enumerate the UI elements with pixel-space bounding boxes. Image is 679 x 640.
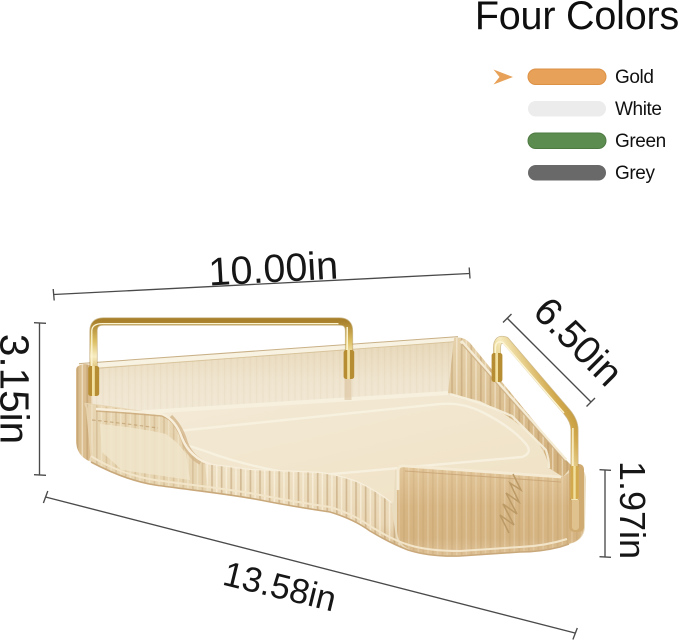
svg-text:1.97in: 1.97in bbox=[612, 461, 653, 559]
svg-text:White: White bbox=[615, 99, 662, 120]
svg-text:10.00in: 10.00in bbox=[207, 244, 339, 295]
svg-text:Grey: Grey bbox=[615, 163, 655, 184]
svg-text:3.15in: 3.15in bbox=[0, 334, 38, 444]
svg-text:Green: Green bbox=[615, 131, 666, 152]
svg-text:Gold: Gold bbox=[615, 67, 654, 88]
svg-text:Four Colors: Four Colors bbox=[475, 0, 679, 38]
